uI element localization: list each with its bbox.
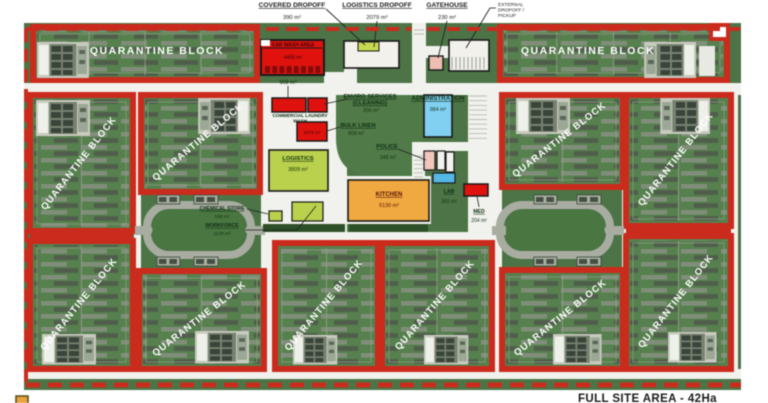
svg-text:LOGISTICS: LOGISTICS	[282, 156, 313, 162]
svg-text:ADMINISTRATION: ADMINISTRATION	[411, 95, 465, 102]
svg-text:GATEHOUSE: GATEHOUSE	[426, 2, 468, 9]
svg-text:363 m²: 363 m²	[441, 199, 457, 205]
svg-text:2378 m²: 2378 m²	[304, 130, 321, 135]
svg-text:QUARANTINE BLOCK: QUARANTINE BLOCK	[90, 45, 224, 57]
svg-text:BULK LINEN: BULK LINEN	[340, 123, 375, 129]
svg-text:348 m²: 348 m²	[380, 155, 396, 161]
svg-text:PICKUP: PICKUP	[498, 13, 516, 19]
svg-text:908 m²: 908 m²	[348, 131, 364, 137]
svg-text:CAR WASH AREA: CAR WASH AREA	[272, 43, 315, 49]
svg-text:168 m²: 168 m²	[215, 214, 230, 220]
svg-text:POLICE: POLICE	[376, 144, 398, 150]
svg-text:5130 m²: 5130 m²	[379, 203, 399, 209]
svg-text:KITCHEN: KITCHEN	[376, 192, 403, 198]
svg-text:(CLEANING): (CLEANING)	[353, 101, 387, 107]
svg-text:QUARANTINE BLOCK: QUARANTINE BLOCK	[521, 45, 655, 57]
svg-text:FULL SITE AREA - 42Ha: FULL SITE AREA - 42Ha	[578, 393, 717, 403]
svg-text:3809 m²: 3809 m²	[288, 167, 308, 173]
svg-text:COMMERCIAL LAUNDRY: COMMERCIAL LAUNDRY	[272, 113, 327, 118]
svg-text:306 m²: 306 m²	[363, 108, 379, 114]
svg-text:COVERED DROPOFF: COVERED DROPOFF	[259, 2, 326, 9]
svg-text:ENVIRO SERVICES: ENVIRO SERVICES	[343, 94, 396, 100]
svg-text:MED: MED	[473, 209, 485, 215]
svg-text:LAB: LAB	[444, 189, 455, 195]
svg-text:DROPOFF /: DROPOFF /	[498, 8, 525, 14]
svg-text:4400 m²: 4400 m²	[284, 55, 303, 61]
svg-text:CHEMICAL STORE: CHEMICAL STORE	[200, 206, 245, 212]
svg-text:EXTERNAL: EXTERNAL	[498, 2, 524, 8]
svg-text:230 m²: 230 m²	[438, 15, 456, 21]
svg-text:908 m²: 908 m²	[279, 80, 296, 86]
svg-text:2079 m²: 2079 m²	[366, 15, 387, 21]
svg-text:WORKFORCE: WORKFORCE	[205, 223, 239, 229]
svg-text:LOGISTICS DROPOFF: LOGISTICS DROPOFF	[342, 2, 412, 9]
svg-text:204 m²: 204 m²	[471, 218, 487, 224]
svg-text:984 m²: 984 m²	[430, 107, 446, 113]
svg-text:390 m²: 390 m²	[283, 15, 301, 21]
svg-text:1128 m²: 1128 m²	[213, 231, 231, 237]
